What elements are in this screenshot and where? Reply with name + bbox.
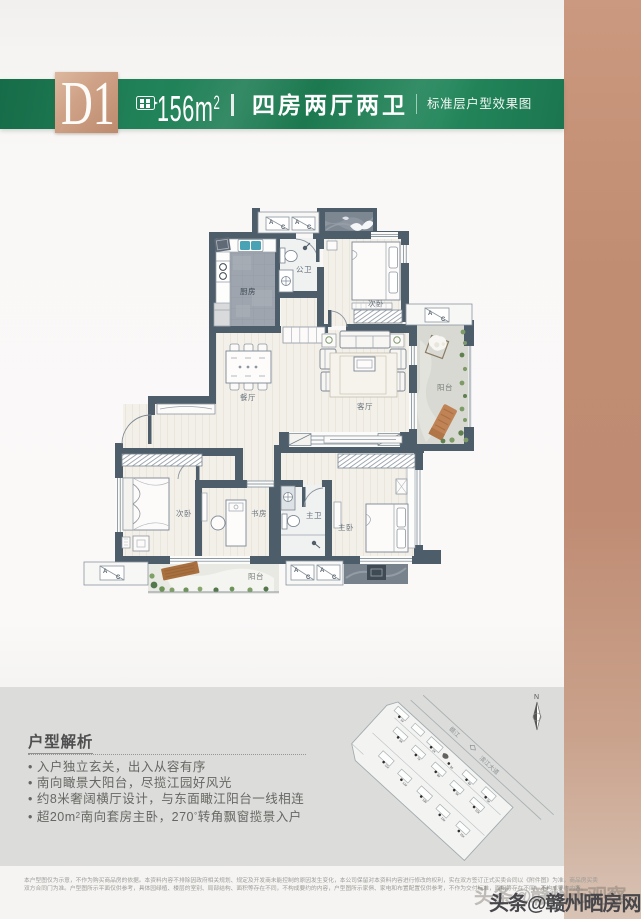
svg-text:厨房: 厨房 <box>240 286 256 296</box>
svg-text:C: C <box>281 225 286 231</box>
svg-text:C: C <box>306 575 311 581</box>
svg-text:A: A <box>320 568 325 574</box>
svg-text:书房: 书房 <box>251 508 267 518</box>
svg-text:餐厅: 餐厅 <box>240 393 256 402</box>
svg-text:C: C <box>307 225 312 231</box>
svg-text:阳台: 阳台 <box>248 571 264 581</box>
svg-text:A: A <box>103 569 108 575</box>
svg-text:C: C <box>441 317 446 323</box>
svg-text:A: A <box>294 568 299 574</box>
svg-text:客厅: 客厅 <box>357 401 373 411</box>
svg-text:N: N <box>534 694 539 701</box>
svg-text:滨江大道: 滨江大道 <box>478 754 501 776</box>
svg-text:次卧: 次卧 <box>176 508 192 518</box>
svg-text:A: A <box>428 311 433 317</box>
svg-text:A: A <box>269 220 274 226</box>
svg-text:C: C <box>116 575 121 581</box>
svg-text:A: A <box>295 220 300 226</box>
svg-text:公卫: 公卫 <box>296 265 312 274</box>
svg-text:主卫: 主卫 <box>306 510 322 520</box>
svg-text:阳台: 阳台 <box>437 382 453 392</box>
svg-text:C: C <box>332 575 337 581</box>
svg-text:次卧: 次卧 <box>368 298 384 308</box>
svg-text:主卧: 主卧 <box>338 522 354 532</box>
svg-text:赣江: 赣江 <box>447 725 461 739</box>
